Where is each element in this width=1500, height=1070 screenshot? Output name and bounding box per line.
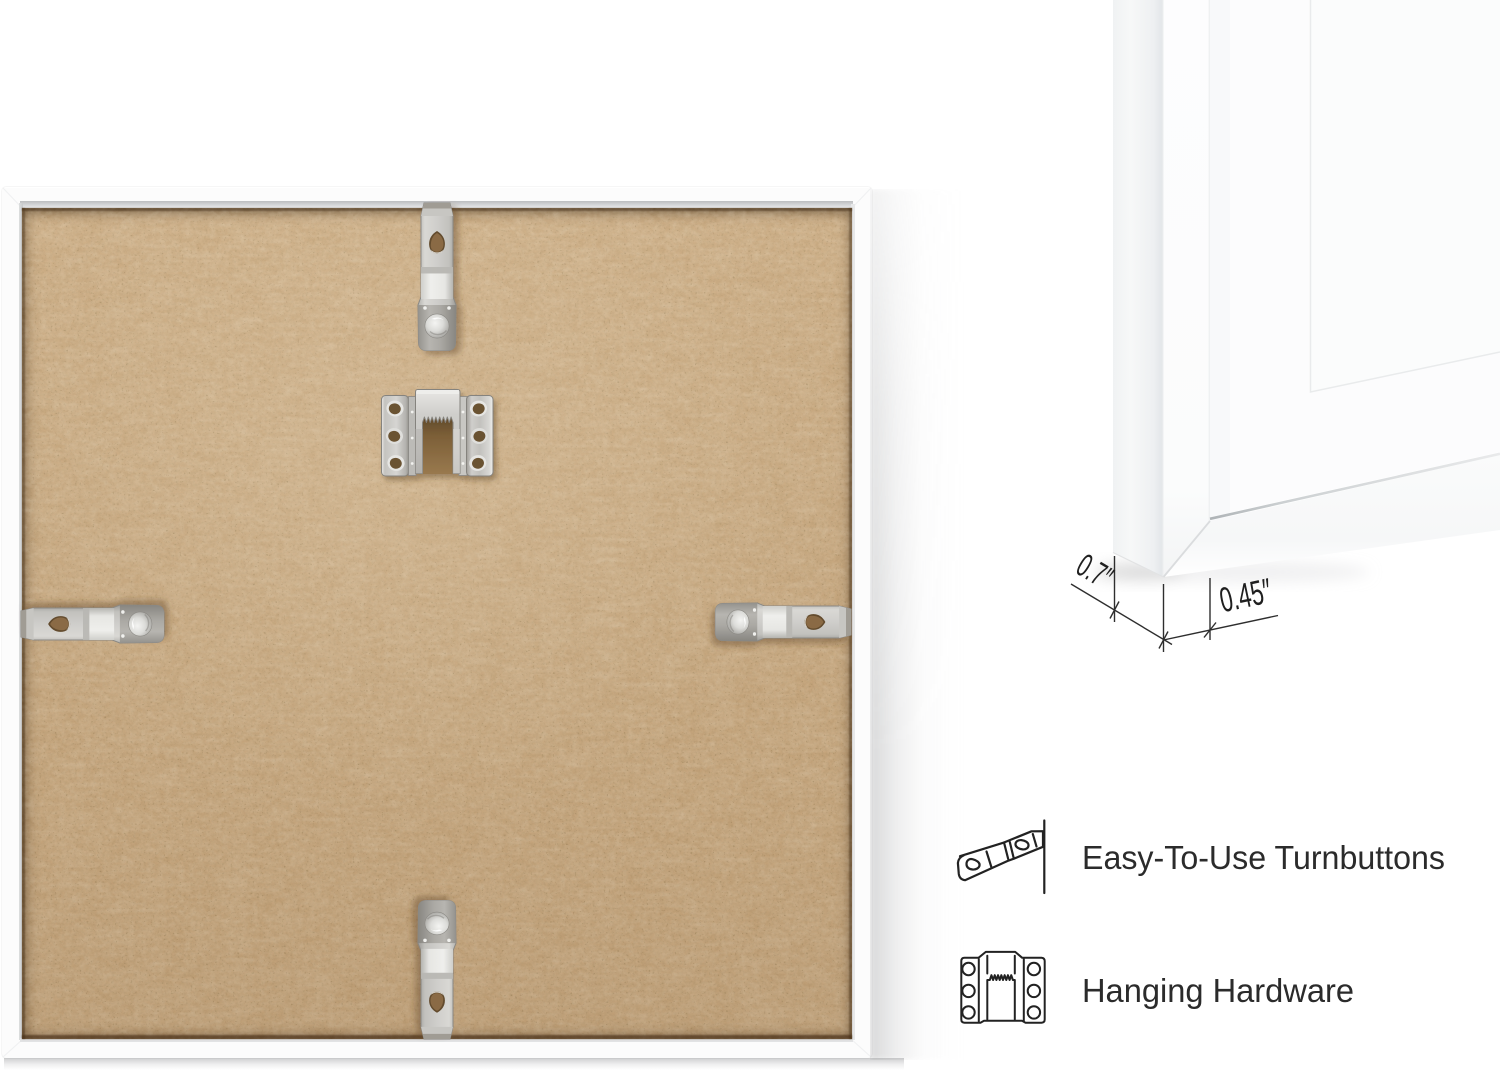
svg-text:Easy-To-Use Turnbuttons: Easy-To-Use Turnbuttons bbox=[1082, 839, 1445, 876]
svg-text:Hanging Hardware: Hanging Hardware bbox=[1082, 972, 1354, 1009]
